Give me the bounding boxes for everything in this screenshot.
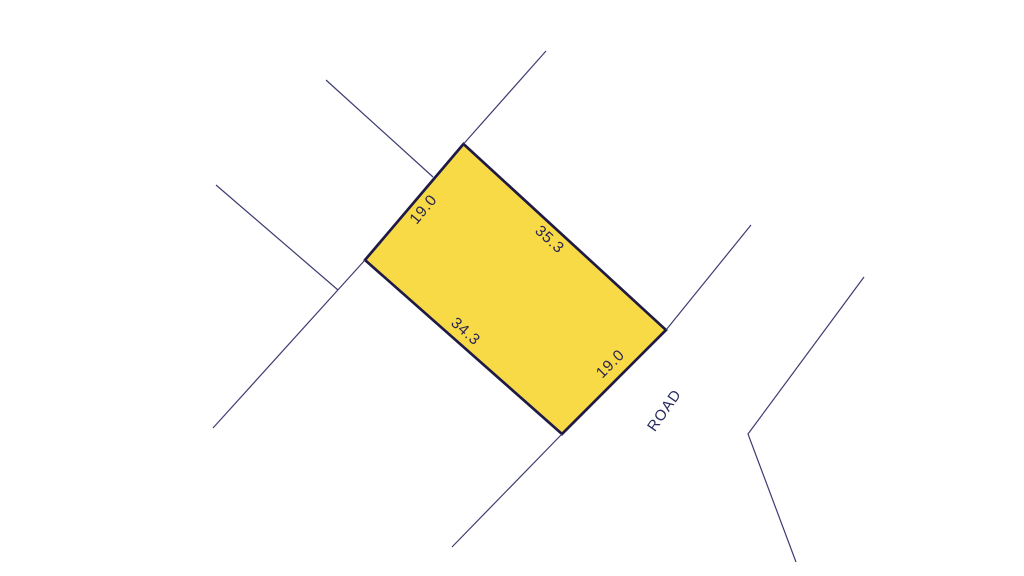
svg-text:ROAD: ROAD (644, 386, 685, 435)
